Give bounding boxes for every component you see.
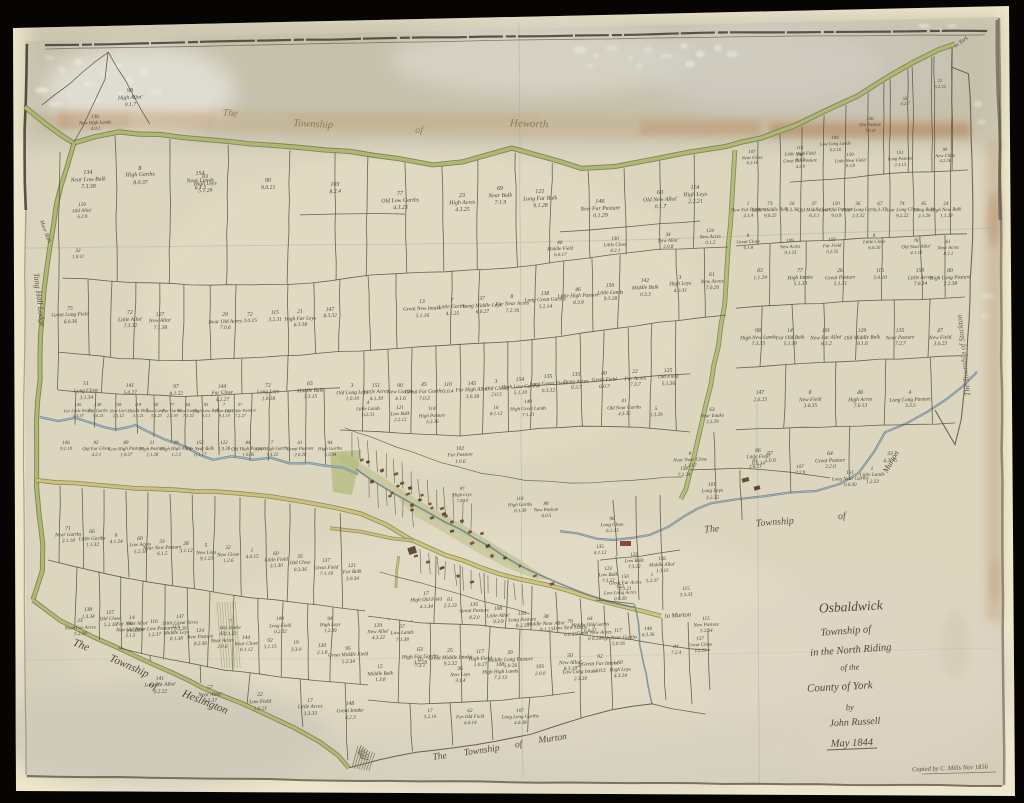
svg-text:4.2.1: 4.2.1 xyxy=(92,453,102,458)
svg-text:1.3.38: 1.3.38 xyxy=(218,447,231,452)
svg-text:103: 103 xyxy=(330,182,339,188)
svg-text:3.0.38: 3.0.38 xyxy=(465,394,480,401)
svg-text:37: 37 xyxy=(811,201,817,207)
svg-text:High Allot': High Allot' xyxy=(117,95,144,102)
svg-text:6.3.38: 6.3.38 xyxy=(294,322,308,328)
svg-text:6.2.16: 6.2.16 xyxy=(747,160,759,165)
svg-text:9.2.22: 9.2.22 xyxy=(896,214,909,219)
svg-text:2.1.28: 2.1.28 xyxy=(146,453,159,458)
svg-text:3: 3 xyxy=(493,379,497,385)
svg-text:7.0.11: 7.0.11 xyxy=(865,128,876,133)
svg-text:29: 29 xyxy=(222,312,228,318)
svg-text:39: 39 xyxy=(173,441,179,446)
svg-text:8.1.39: 8.1.39 xyxy=(514,509,527,514)
svg-text:2.3.32: 2.3.32 xyxy=(852,214,865,219)
svg-text:105: 105 xyxy=(536,664,545,670)
svg-text:6.3.1: 6.3.1 xyxy=(809,214,819,219)
svg-text:3.0.4: 3.0.4 xyxy=(442,389,454,395)
svg-text:New Pasture: New Pasture xyxy=(692,623,719,629)
svg-text:7.0.13: 7.0.13 xyxy=(854,403,868,409)
svg-text:22: 22 xyxy=(632,369,638,375)
svg-text:Great Close: Great Close xyxy=(688,643,713,649)
svg-text:6.0.20: 6.0.20 xyxy=(868,246,881,251)
svg-text:135: 135 xyxy=(596,544,604,550)
svg-text:8.3.32: 8.3.32 xyxy=(323,313,337,319)
svg-text:Long Pasture: Long Pasture xyxy=(887,156,913,162)
svg-text:High Leys: High Leys xyxy=(193,181,217,188)
svg-text:1.0.6: 1.0.6 xyxy=(455,459,466,465)
svg-text:9.3.7: 9.3.7 xyxy=(571,385,582,391)
svg-text:115: 115 xyxy=(682,586,690,592)
svg-text:4.1.18: 4.1.18 xyxy=(910,251,923,256)
svg-text:24: 24 xyxy=(943,200,949,207)
svg-text:8.1.12: 8.1.12 xyxy=(240,647,254,653)
svg-text:115: 115 xyxy=(702,616,710,622)
svg-text:2.2.23: 2.2.23 xyxy=(444,603,458,609)
svg-text:0.3.3: 0.3.3 xyxy=(640,292,651,298)
svg-text:60: 60 xyxy=(617,660,623,666)
svg-text:0.1.2: 0.1.2 xyxy=(705,241,716,246)
svg-text:Middle Field: Middle Field xyxy=(546,247,574,253)
svg-text:159: 159 xyxy=(78,202,86,208)
svg-text:150: 150 xyxy=(606,283,615,289)
svg-text:4.1.30: 4.1.30 xyxy=(370,396,384,402)
svg-text:Far Old Field: Far Old Field xyxy=(455,714,485,720)
svg-text:4.2.9: 4.2.9 xyxy=(796,164,806,169)
svg-text:4.1.25: 4.1.25 xyxy=(446,311,460,317)
svg-text:141: 141 xyxy=(126,383,135,389)
svg-text:4.0.38: 4.0.38 xyxy=(514,721,527,726)
svg-text:100: 100 xyxy=(276,616,284,622)
svg-text:Little Close: Little Close xyxy=(862,240,886,246)
svg-text:Near Acres: Near Acres xyxy=(936,246,959,252)
svg-text:5.2.24: 5.2.24 xyxy=(700,629,713,634)
svg-text:2.0.0: 2.0.0 xyxy=(535,671,546,677)
svg-text:4.3.37: 4.3.37 xyxy=(73,413,85,418)
svg-text:Long Field: Long Field xyxy=(268,624,292,630)
svg-text:61: 61 xyxy=(709,272,715,278)
svg-text:66: 66 xyxy=(89,529,95,535)
svg-text:7.2.9: 7.2.9 xyxy=(795,471,806,476)
svg-text:84: 84 xyxy=(245,441,251,446)
svg-text:6.1.1: 6.1.1 xyxy=(202,413,211,418)
svg-text:89: 89 xyxy=(123,441,129,446)
svg-text:119: 119 xyxy=(135,402,142,407)
svg-text:3.3.23: 3.3.23 xyxy=(151,413,163,418)
svg-text:7.1.38: 7.1.38 xyxy=(396,637,410,643)
svg-text:22: 22 xyxy=(257,692,263,698)
svg-text:3.0.23: 3.0.23 xyxy=(933,341,948,348)
svg-text:High Leys: High Leys xyxy=(682,192,708,199)
svg-text:Near Balk: Near Balk xyxy=(487,193,512,200)
svg-text:5.1.29: 5.1.29 xyxy=(198,188,212,194)
svg-text:6.2.22: 6.2.22 xyxy=(934,84,946,89)
svg-text:4: 4 xyxy=(908,390,911,396)
svg-text:1.2.37: 1.2.37 xyxy=(148,632,162,638)
svg-text:56: 56 xyxy=(789,201,795,207)
svg-text:124: 124 xyxy=(706,227,714,234)
svg-text:8.0.37: 8.0.37 xyxy=(133,180,149,187)
svg-text:0.1.7: 0.1.7 xyxy=(125,102,137,108)
svg-text:4.0.1: 4.0.1 xyxy=(91,127,101,132)
svg-text:Great Field: Great Field xyxy=(592,377,618,384)
svg-text:129: 129 xyxy=(858,328,867,334)
svg-text:25: 25 xyxy=(447,648,453,654)
svg-text:3.2.35: 3.2.35 xyxy=(706,495,720,501)
svg-text:0.2.32: 0.2.32 xyxy=(274,630,287,635)
svg-text:108: 108 xyxy=(496,662,505,668)
svg-text:64: 64 xyxy=(827,451,833,457)
svg-text:7.3.33: 7.3.33 xyxy=(752,341,766,347)
svg-text:The: The xyxy=(704,523,720,535)
svg-text:1.0.27: 1.0.27 xyxy=(120,453,133,458)
svg-text:1.0.35: 1.0.35 xyxy=(242,453,255,458)
svg-text:130: 130 xyxy=(318,643,327,649)
svg-text:6.1.17: 6.1.17 xyxy=(194,453,207,458)
svg-text:135: 135 xyxy=(544,374,553,380)
svg-text:6.0.27: 6.0.27 xyxy=(476,309,490,315)
svg-text:2.2.29: 2.2.29 xyxy=(706,420,719,425)
svg-text:9.0.21: 9.0.21 xyxy=(261,185,276,192)
svg-text:0.0.35: 0.0.35 xyxy=(564,632,578,638)
svg-text:1.3.12: 1.3.12 xyxy=(113,413,125,418)
svg-text:61: 61 xyxy=(945,240,950,245)
svg-text:5.1.31: 5.1.31 xyxy=(834,281,848,287)
svg-text:150: 150 xyxy=(621,574,629,580)
svg-text:1.3.34: 1.3.34 xyxy=(82,613,96,620)
svg-text:Near Low Balk: Near Low Balk xyxy=(70,176,107,183)
svg-text:Old Field: Old Field xyxy=(658,374,679,381)
svg-text:5.3.33: 5.3.33 xyxy=(680,593,693,598)
svg-text:64: 64 xyxy=(587,615,593,622)
svg-text:Near Intake: Near Intake xyxy=(699,414,725,420)
svg-text:2.3.13: 2.3.13 xyxy=(895,162,907,167)
svg-text:9.3.9: 9.3.9 xyxy=(493,619,504,625)
svg-text:2.0.28: 2.0.28 xyxy=(294,453,307,458)
svg-text:3.3.33: 3.3.33 xyxy=(303,711,318,718)
svg-text:148: 148 xyxy=(346,701,355,707)
svg-text:63: 63 xyxy=(709,407,715,413)
svg-text:101: 101 xyxy=(822,328,831,334)
svg-text:by: by xyxy=(846,702,855,712)
svg-text:88: 88 xyxy=(557,240,563,246)
svg-text:6.0.14: 6.0.14 xyxy=(464,721,477,726)
svg-text:Long Far Balk: Long Far Balk xyxy=(522,195,558,202)
svg-text:New Acres: New Acres xyxy=(698,235,720,241)
svg-text:48: 48 xyxy=(857,390,863,396)
svg-text:5.2.36: 5.2.36 xyxy=(426,420,439,425)
svg-text:High Leys: High Leys xyxy=(452,492,472,498)
svg-text:1.0.11: 1.0.11 xyxy=(72,255,84,260)
svg-text:9.1.23: 9.1.23 xyxy=(540,627,554,633)
svg-text:15: 15 xyxy=(377,664,383,670)
svg-text:17: 17 xyxy=(427,708,433,714)
svg-text:Far Near Balk: Far Near Balk xyxy=(185,446,215,452)
svg-text:98: 98 xyxy=(127,88,133,94)
svg-text:6.1.12: 6.1.12 xyxy=(594,551,607,556)
svg-text:89: 89 xyxy=(543,502,549,507)
svg-text:Long Close: Long Close xyxy=(73,388,100,395)
svg-text:8.2.36: 8.2.36 xyxy=(194,641,208,647)
svg-text:6.1.5: 6.1.5 xyxy=(157,551,168,557)
svg-text:7.1.38: 7.1.38 xyxy=(154,325,168,331)
svg-text:4.0.31: 4.0.31 xyxy=(674,288,688,294)
svg-text:90: 90 xyxy=(127,621,133,627)
svg-text:130: 130 xyxy=(611,236,619,242)
svg-text:Long Leys: Long Leys xyxy=(256,389,280,396)
svg-text:83: 83 xyxy=(757,268,763,274)
svg-text:14: 14 xyxy=(787,328,793,334)
svg-text:2.0.6: 2.0.6 xyxy=(217,644,228,650)
svg-text:8.3.36: 8.3.36 xyxy=(294,567,308,573)
svg-text:Low Long Intake: Low Long Intake xyxy=(561,668,598,675)
svg-text:Middle Allot': Middle Allot' xyxy=(648,563,676,569)
svg-text:137: 137 xyxy=(322,558,331,564)
svg-text:6.0.7: 6.0.7 xyxy=(599,384,610,390)
svg-text:High Leys: High Leys xyxy=(668,281,691,288)
svg-text:High Leys: High Leys xyxy=(319,623,341,629)
svg-text:5.1.10: 5.1.10 xyxy=(784,341,798,347)
svg-text:7.3.7: 7.3.7 xyxy=(630,382,641,388)
svg-text:36: 36 xyxy=(855,201,861,207)
svg-text:3.2.14: 3.2.14 xyxy=(538,304,553,311)
svg-text:5.0.10: 5.0.10 xyxy=(873,275,887,281)
svg-text:Low Lands: Low Lands xyxy=(390,630,414,637)
svg-text:62: 62 xyxy=(467,708,473,714)
svg-text:New Acres: New Acres xyxy=(779,245,801,251)
svg-text:7.1.19: 7.1.19 xyxy=(320,571,334,577)
svg-text:7.2.13: 7.2.13 xyxy=(494,675,508,681)
svg-text:63: 63 xyxy=(417,647,423,653)
svg-text:134: 134 xyxy=(83,170,92,176)
svg-text:74: 74 xyxy=(899,200,905,207)
svg-text:8.2.1: 8.2.1 xyxy=(610,249,620,254)
svg-text:23: 23 xyxy=(459,193,465,199)
svg-text:1.0.10: 1.0.10 xyxy=(346,396,360,402)
svg-text:New Allot': New Allot' xyxy=(657,239,680,245)
svg-text:7.0.20: 7.0.20 xyxy=(706,285,720,291)
svg-text:4.3.25: 4.3.25 xyxy=(455,206,470,214)
svg-text:Far Balk: Far Balk xyxy=(342,569,362,576)
svg-text:73: 73 xyxy=(767,201,773,207)
svg-text:3.1.21: 3.1.21 xyxy=(133,413,144,418)
svg-text:3.3.5: 3.3.5 xyxy=(904,403,916,409)
svg-text:Low Balk: Low Balk xyxy=(624,559,645,565)
svg-text:Township: Township xyxy=(293,118,333,131)
svg-text:9.1.23: 9.1.23 xyxy=(200,556,214,562)
svg-text:2.1.26: 2.1.26 xyxy=(918,214,931,219)
svg-text:117: 117 xyxy=(614,628,622,634)
svg-text:9.3.28: 9.3.28 xyxy=(604,296,618,302)
svg-text:115: 115 xyxy=(876,268,884,274)
svg-text:4.0.15: 4.0.15 xyxy=(246,553,260,560)
svg-text:114: 114 xyxy=(691,185,700,191)
svg-text:9.3.29: 9.3.29 xyxy=(174,627,187,632)
svg-text:Old Near Allot': Old Near Allot' xyxy=(901,244,932,250)
svg-text:High Old Field: High Old Field xyxy=(409,596,442,603)
svg-text:50: 50 xyxy=(567,653,573,659)
svg-text:3.3.0: 3.3.0 xyxy=(291,647,302,653)
svg-text:90: 90 xyxy=(265,178,271,184)
svg-text:115: 115 xyxy=(271,310,279,316)
svg-text:6.3.9: 6.3.9 xyxy=(77,215,88,220)
svg-text:7.3.22: 7.3.22 xyxy=(628,565,641,570)
svg-text:138: 138 xyxy=(84,607,93,613)
svg-text:4.1.6: 4.1.6 xyxy=(395,396,406,402)
svg-text:38: 38 xyxy=(542,614,549,620)
svg-text:8.2.4: 8.2.4 xyxy=(329,188,341,195)
svg-text:3.1.34: 3.1.34 xyxy=(79,395,94,402)
svg-text:92: 92 xyxy=(93,441,99,446)
svg-text:123: 123 xyxy=(604,566,612,572)
svg-text:7.2.4: 7.2.4 xyxy=(671,651,682,656)
svg-text:1.3.8: 1.3.8 xyxy=(375,677,386,683)
svg-text:Long Leys: Long Leys xyxy=(700,488,723,495)
svg-text:21: 21 xyxy=(297,309,303,315)
svg-text:108: 108 xyxy=(494,606,503,612)
svg-text:Old Allot': Old Allot' xyxy=(72,209,93,215)
svg-text:8: 8 xyxy=(510,294,513,300)
svg-text:2.2.38: 2.2.38 xyxy=(944,281,958,287)
svg-text:2.0.21: 2.0.21 xyxy=(749,465,762,470)
svg-text:109: 109 xyxy=(786,239,794,244)
svg-text:1.0.21: 1.0.21 xyxy=(254,706,268,712)
svg-text:2.0.8: 2.0.8 xyxy=(663,245,674,250)
svg-text:4.1.24: 4.1.24 xyxy=(110,538,124,545)
svg-text:Great Pasture: Great Pasture xyxy=(287,446,315,452)
svg-text:1.0.27: 1.0.27 xyxy=(474,662,488,668)
svg-text:78: 78 xyxy=(913,239,919,244)
svg-text:9.1.28: 9.1.28 xyxy=(533,203,548,210)
svg-text:94: 94 xyxy=(327,615,333,622)
svg-text:137: 137 xyxy=(176,614,184,620)
svg-text:High Garths: High Garths xyxy=(125,171,156,178)
svg-text:8.2.22: 8.2.22 xyxy=(169,391,183,397)
svg-text:Little Field: Little Field xyxy=(745,454,770,461)
svg-text:6.0.37: 6.0.37 xyxy=(584,629,597,634)
svg-text:7.2.24: 7.2.24 xyxy=(678,473,691,478)
svg-text:0.3.8: 0.3.8 xyxy=(846,163,856,168)
svg-text:Little Lands: Little Lands xyxy=(355,407,380,413)
svg-text:New Pasture: New Pasture xyxy=(533,508,560,514)
svg-text:39: 39 xyxy=(506,650,513,656)
svg-text:New Old Leys: New Old Leys xyxy=(115,628,144,634)
svg-text:41: 41 xyxy=(621,397,627,404)
svg-text:5: 5 xyxy=(204,543,207,549)
svg-text:Low Field: Low Field xyxy=(248,699,272,706)
svg-text:110: 110 xyxy=(444,382,452,388)
svg-text:1.2.17: 1.2.17 xyxy=(684,464,697,469)
svg-text:to Murton: to Murton xyxy=(665,611,692,619)
svg-text:144: 144 xyxy=(644,625,652,632)
svg-text:4.3.23: 4.3.23 xyxy=(393,204,408,212)
svg-text:Little Close: Little Close xyxy=(603,243,628,249)
svg-text:6.0.17: 6.0.17 xyxy=(554,253,567,258)
svg-text:150: 150 xyxy=(832,201,840,207)
svg-text:5.1.36: 5.1.36 xyxy=(662,381,676,387)
svg-text:83: 83 xyxy=(202,174,208,180)
svg-text:2.2.12: 2.2.12 xyxy=(394,418,407,423)
svg-text:1.2.6: 1.2.6 xyxy=(223,558,234,564)
svg-text:7.2.7: 7.2.7 xyxy=(895,341,906,347)
svg-text:0.2.25: 0.2.25 xyxy=(826,250,839,255)
svg-text:4.2.3: 4.2.3 xyxy=(345,715,356,721)
svg-text:126: 126 xyxy=(658,556,666,562)
svg-text:0.0.30: 0.0.30 xyxy=(844,483,857,488)
svg-text:3.1.5: 3.1.5 xyxy=(125,634,136,639)
svg-text:1.3.15: 1.3.15 xyxy=(656,569,669,574)
svg-text:67: 67 xyxy=(877,201,883,207)
svg-text:45: 45 xyxy=(421,382,427,388)
svg-text:23: 23 xyxy=(77,618,83,624)
svg-text:Old New Allot': Old New Allot' xyxy=(643,196,678,203)
svg-text:60: 60 xyxy=(657,190,663,196)
svg-text:3.0.15: 3.0.15 xyxy=(242,318,257,325)
svg-text:5.1.33: 5.1.33 xyxy=(794,281,808,287)
svg-text:7.1.9: 7.1.9 xyxy=(495,200,507,206)
svg-text:0.1.29: 0.1.29 xyxy=(593,213,608,220)
svg-text:69: 69 xyxy=(497,186,503,192)
svg-text:130: 130 xyxy=(91,115,99,120)
svg-text:149: 149 xyxy=(524,398,532,405)
svg-text:3.2.0: 3.2.0 xyxy=(824,464,836,470)
svg-text:The: The xyxy=(222,107,238,119)
svg-text:3.3.15: 3.3.15 xyxy=(303,394,318,401)
svg-text:13: 13 xyxy=(419,299,425,305)
svg-text:8.2.0: 8.2.0 xyxy=(469,615,480,621)
svg-text:5.0.16: 5.0.16 xyxy=(612,641,626,647)
svg-text:9.3.19: 9.3.19 xyxy=(219,413,231,418)
svg-text:8.1.12: 8.1.12 xyxy=(490,412,503,417)
svg-text:34: 34 xyxy=(665,231,671,238)
svg-text:7.3.32: 7.3.32 xyxy=(124,323,138,329)
svg-text:26: 26 xyxy=(837,268,843,274)
svg-text:1.1.32: 1.1.32 xyxy=(86,542,100,548)
svg-text:84: 84 xyxy=(673,643,679,650)
svg-text:8.2.1: 8.2.1 xyxy=(944,252,954,257)
svg-text:High Garths: High Garths xyxy=(507,503,532,509)
svg-text:Far Field: Far Field xyxy=(822,244,842,250)
svg-text:121: 121 xyxy=(535,189,544,195)
svg-text:Low Balk: Low Balk xyxy=(598,573,619,579)
svg-text:2.2.21: 2.2.21 xyxy=(688,199,703,206)
svg-text:7.2.27: 7.2.27 xyxy=(235,413,247,418)
svg-text:117: 117 xyxy=(476,649,485,655)
svg-text:123: 123 xyxy=(630,552,638,558)
svg-text:0.0.39: 0.0.39 xyxy=(614,597,627,602)
svg-text:Great Close: Great Close xyxy=(737,240,761,246)
svg-text:145: 145 xyxy=(74,402,82,407)
svg-text:158: 158 xyxy=(114,402,122,407)
svg-text:1.2.2: 1.2.2 xyxy=(172,453,182,458)
svg-text:1.2.39: 1.2.39 xyxy=(324,629,337,634)
svg-text:5.1.15: 5.1.15 xyxy=(264,644,278,650)
svg-text:135: 135 xyxy=(572,372,581,378)
svg-text:107: 107 xyxy=(796,464,804,470)
svg-text:2.3.29: 2.3.29 xyxy=(574,676,588,682)
svg-text:32: 32 xyxy=(224,545,231,551)
svg-text:152: 152 xyxy=(196,441,204,446)
svg-text:9.0.25: 9.0.25 xyxy=(764,214,777,219)
svg-text:61: 61 xyxy=(297,441,302,446)
svg-text:7.3.38: 7.3.38 xyxy=(81,184,96,191)
svg-text:2.0.23: 2.0.23 xyxy=(753,397,767,403)
svg-text:72: 72 xyxy=(127,310,133,316)
svg-text:5.1.16: 5.1.16 xyxy=(416,313,430,319)
svg-text:High Garths: High Garths xyxy=(317,447,342,453)
svg-text:5.2.37: 5.2.37 xyxy=(646,579,659,584)
svg-text:7.1.21: 7.1.21 xyxy=(522,413,535,418)
